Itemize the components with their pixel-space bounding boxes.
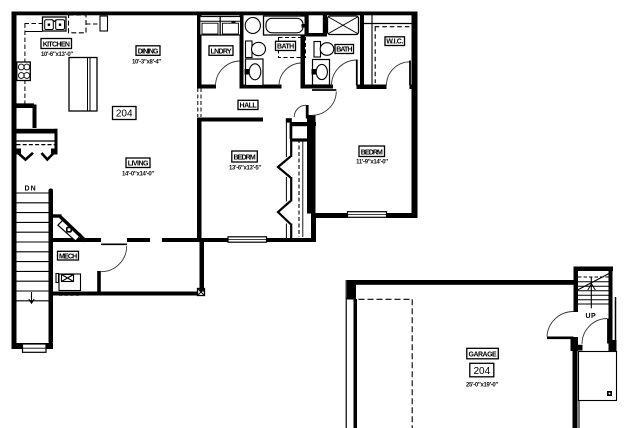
svg-text:BATH: BATH <box>336 47 352 54</box>
svg-text:LIVING: LIVING <box>128 161 149 168</box>
svg-text:BEDRM: BEDRM <box>234 155 256 162</box>
svg-text:DINING: DINING <box>138 48 159 55</box>
svg-text:BEDRM: BEDRM <box>361 149 383 156</box>
svg-text:LNDRY: LNDRY <box>211 48 233 55</box>
svg-text:10′-3″x8′-4″: 10′-3″x8′-4″ <box>132 60 161 66</box>
svg-text:204: 204 <box>116 109 133 120</box>
svg-text:KITCHEN: KITCHEN <box>43 41 70 48</box>
svg-text:14′-0″x14′-0″: 14′-0″x14′-0″ <box>122 172 155 178</box>
svg-text:MECH: MECH <box>59 253 77 260</box>
svg-text:11′-9″x14′-0″: 11′-9″x14′-0″ <box>356 160 388 166</box>
svg-text:25′-0″x19′-0″: 25′-0″x19′-0″ <box>466 383 499 389</box>
svg-text:W.I.C.: W.I.C. <box>386 39 403 46</box>
svg-text:204: 204 <box>473 366 490 377</box>
svg-text:DN: DN <box>25 186 36 193</box>
svg-text:BATH: BATH <box>277 44 294 51</box>
svg-text:HALL: HALL <box>240 103 258 110</box>
svg-text:UP: UP <box>586 313 597 320</box>
svg-text:13′-6″x13′-5″: 13′-6″x13′-5″ <box>229 165 262 171</box>
svg-text:GARAGE: GARAGE <box>469 352 498 359</box>
svg-text:10′-6″x13′-0″: 10′-6″x13′-0″ <box>41 52 74 58</box>
